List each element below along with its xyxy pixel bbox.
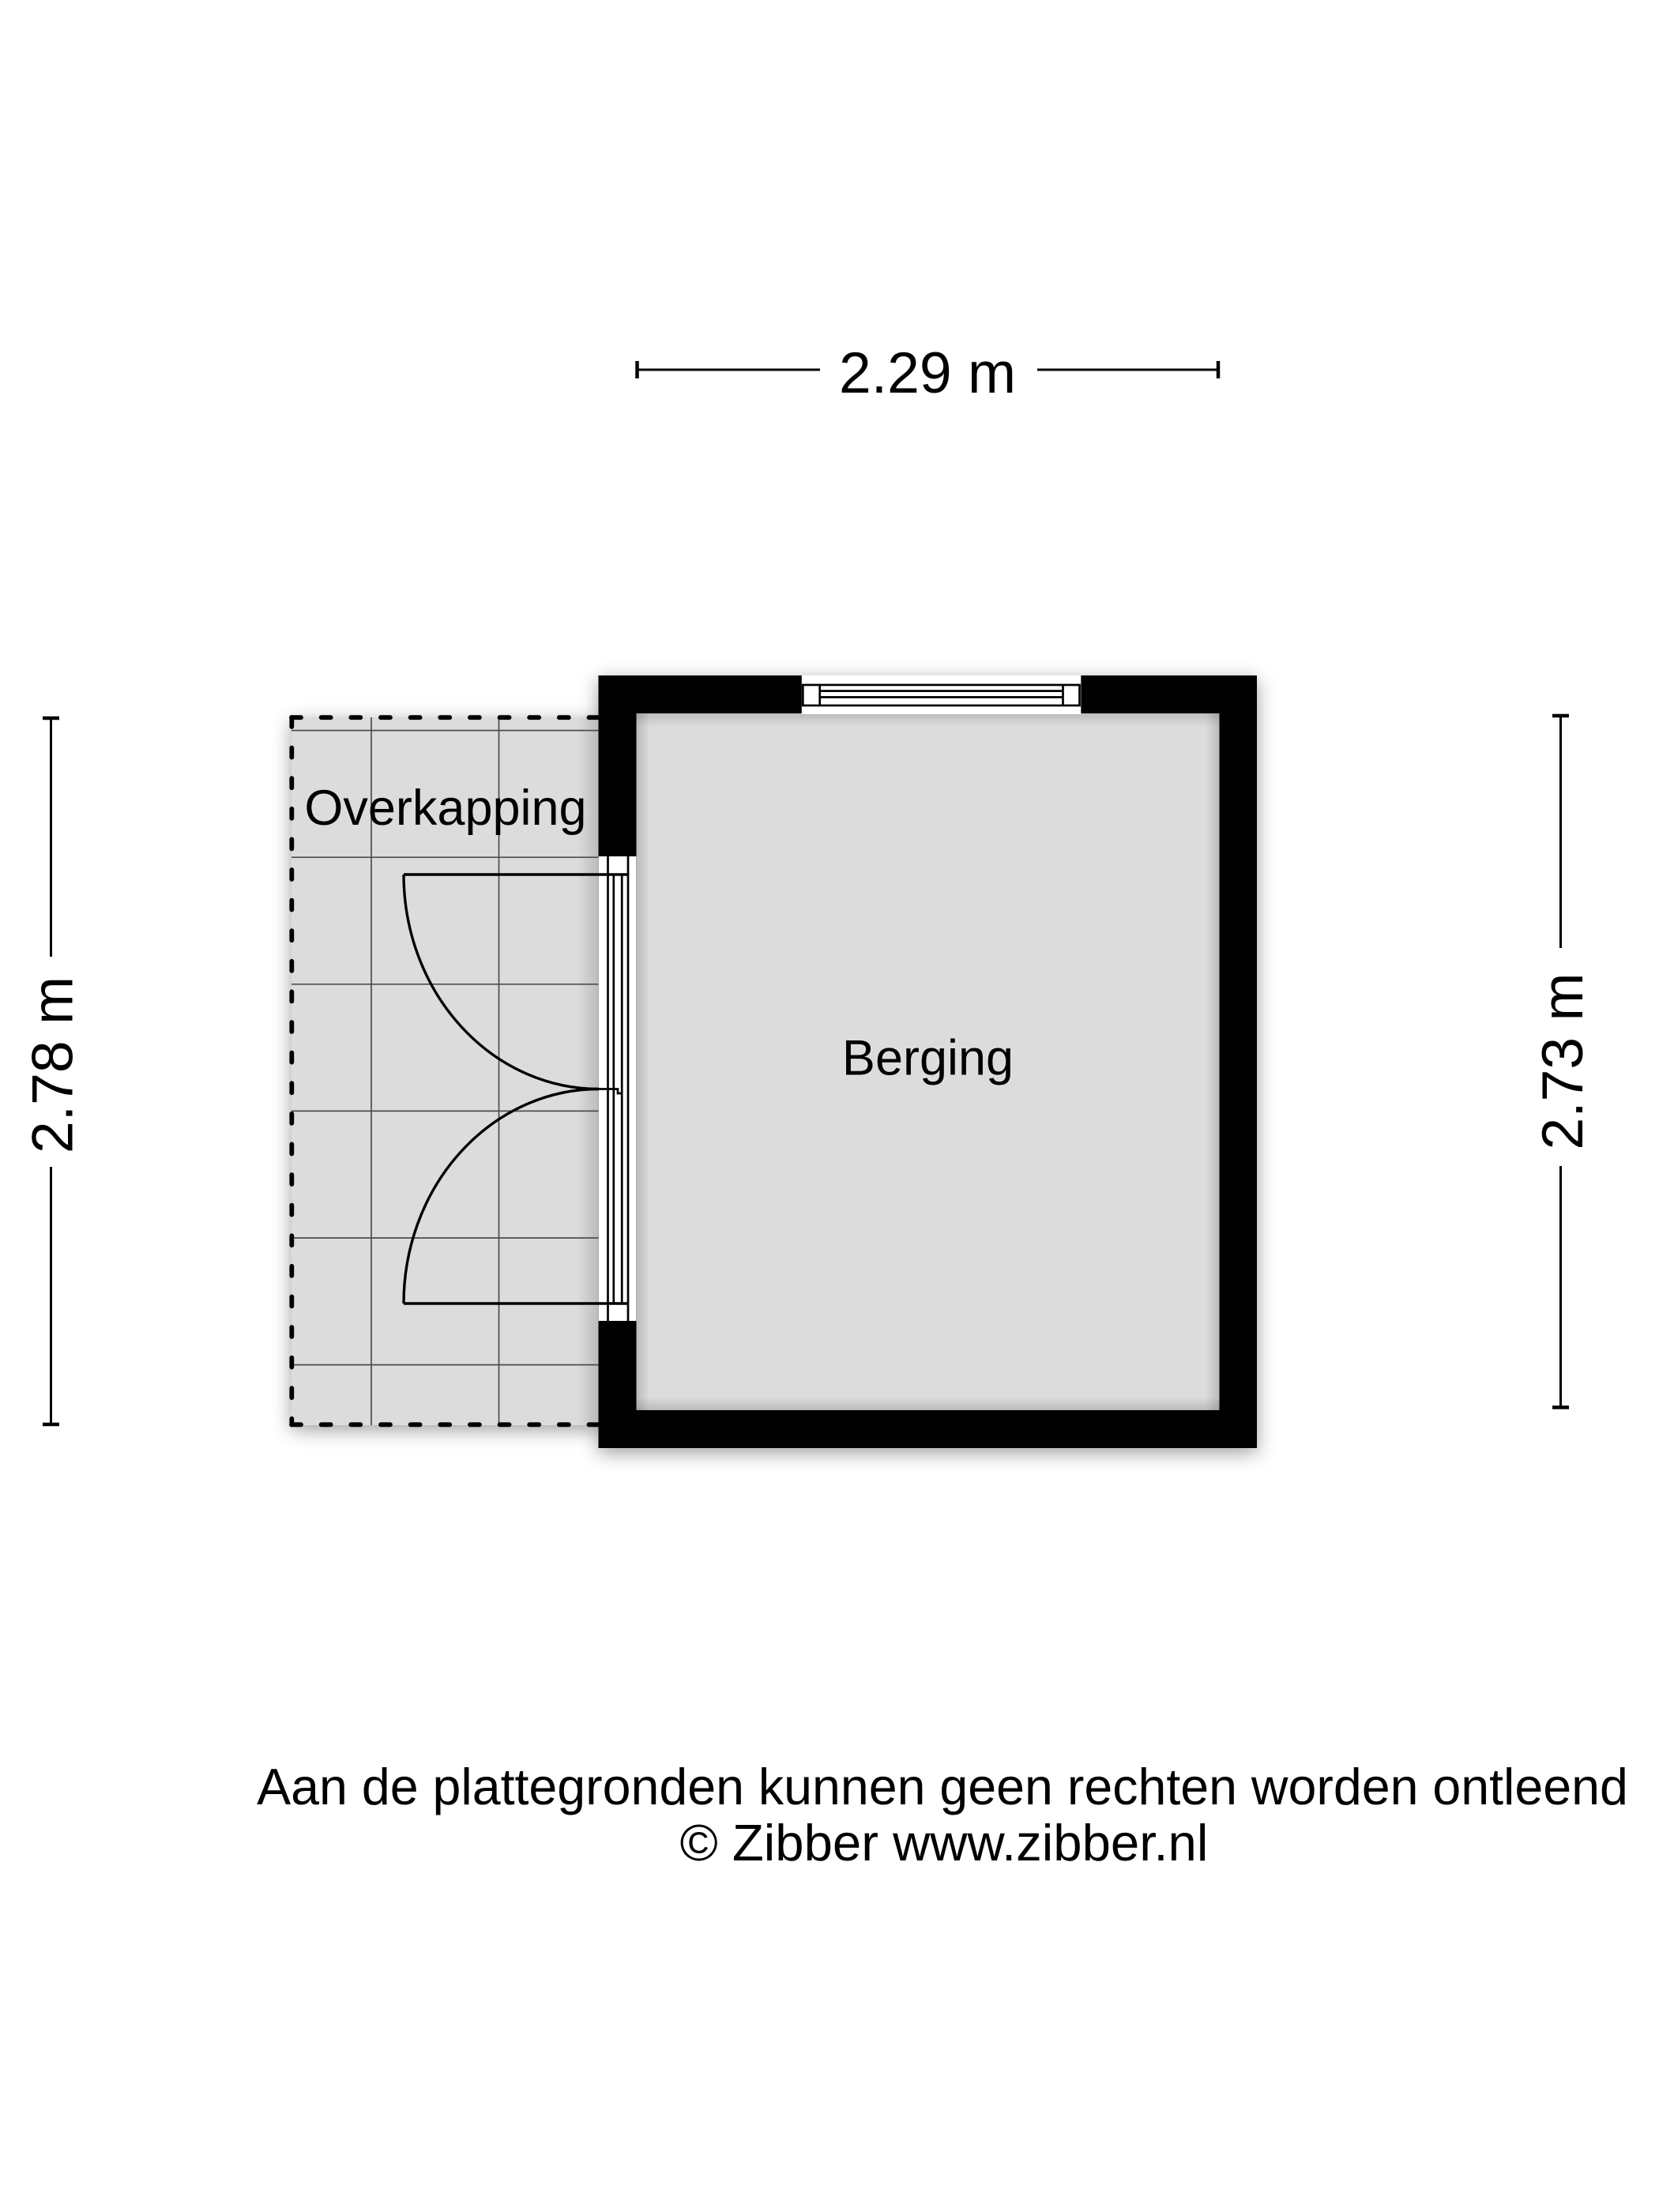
- svg-text:2.29 m: 2.29 m: [839, 340, 1016, 405]
- svg-text:2.73 m: 2.73 m: [1530, 972, 1595, 1149]
- svg-text:Berging: Berging: [842, 1031, 1014, 1086]
- svg-text:Aan de plattegronden kunnen ge: Aan de plattegronden kunnen geen rechten…: [257, 1759, 1628, 1815]
- svg-text:© Zibber www.zibber.nl: © Zibber www.zibber.nl: [680, 1814, 1209, 1872]
- svg-text:2.78 m: 2.78 m: [21, 976, 85, 1153]
- svg-text:Overkapping: Overkapping: [304, 781, 586, 836]
